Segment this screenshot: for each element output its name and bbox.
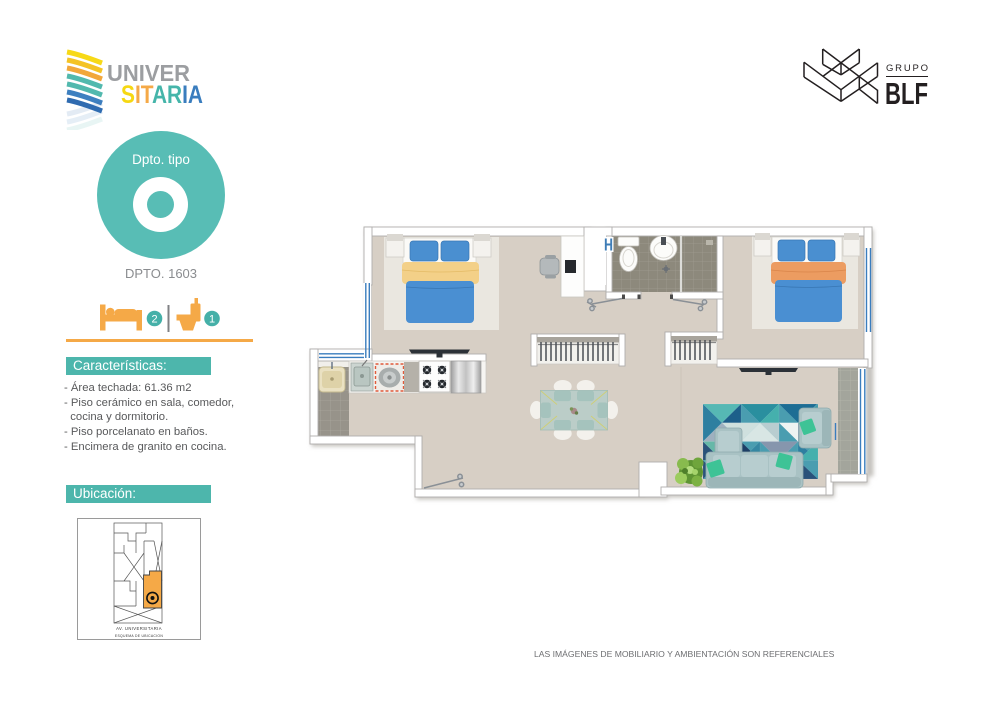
svg-text:1: 1: [209, 314, 215, 326]
svg-text:ESQUEMA DE UBICACION: ESQUEMA DE UBICACION: [115, 634, 163, 638]
svg-text:SITARIA: SITARIA: [121, 81, 203, 109]
svg-text:GRUPO: GRUPO: [886, 63, 928, 74]
svg-text:2: 2: [151, 314, 157, 326]
svg-text:BLF: BLF: [885, 76, 928, 111]
svg-text:AV. UNIVERSITARIA: AV. UNIVERSITARIA: [116, 626, 162, 631]
